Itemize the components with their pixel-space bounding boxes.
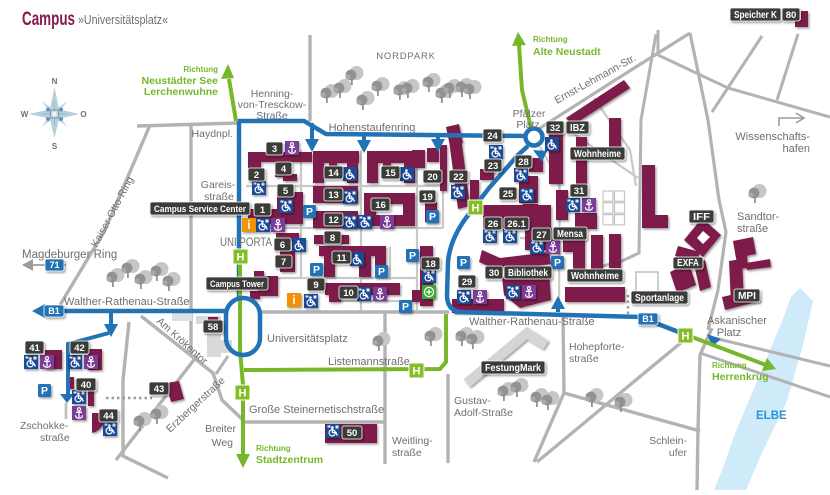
svg-text:Campus Tower: Campus Tower (210, 279, 264, 290)
svg-text:straße: straße (737, 223, 768, 235)
svg-text:IFF: IFF (693, 212, 710, 223)
svg-text:P: P (41, 385, 48, 397)
svg-text:32: 32 (550, 123, 561, 134)
svg-text:18: 18 (425, 259, 436, 270)
svg-text:H: H (237, 252, 245, 264)
svg-text:straße: straße (392, 447, 422, 459)
svg-text:H: H (239, 388, 247, 400)
svg-text:FestungMark: FestungMark (485, 363, 541, 374)
svg-text:Schlein-: Schlein- (649, 435, 687, 447)
svg-text:Zschokke-: Zschokke- (20, 420, 69, 432)
svg-text:EXFA: EXFA (677, 258, 699, 269)
svg-text:straße: straße (204, 191, 234, 203)
svg-text:5: 5 (283, 186, 289, 197)
svg-text:P: P (313, 264, 320, 276)
svg-text:80: 80 (786, 10, 797, 21)
svg-text:Magdeburger Ring: Magdeburger Ring (22, 249, 117, 261)
svg-text:P: P (460, 257, 467, 269)
svg-text:S: S (52, 142, 58, 151)
svg-text:29: 29 (462, 277, 473, 288)
svg-text:25: 25 (503, 189, 514, 200)
svg-text:19: 19 (422, 192, 433, 203)
svg-text:straße: straße (40, 432, 70, 444)
svg-text:W: W (21, 110, 29, 119)
svg-text:14: 14 (328, 168, 339, 179)
svg-text:26: 26 (488, 219, 499, 230)
svg-text:ELBE: ELBE (756, 410, 787, 422)
svg-text:26.1: 26.1 (507, 219, 526, 230)
svg-text:12: 12 (328, 215, 339, 226)
svg-text:23: 23 (488, 161, 499, 172)
svg-text:Alte Neustadt: Alte Neustadt (533, 46, 601, 58)
svg-text:Speicher K: Speicher K (734, 10, 778, 21)
svg-text:Richtung: Richtung (183, 65, 218, 74)
svg-text:71: 71 (49, 260, 59, 270)
svg-text:40: 40 (81, 380, 92, 391)
svg-text:Askanischer: Askanischer (707, 315, 767, 327)
svg-text:16: 16 (375, 200, 386, 211)
svg-text:P: P (378, 266, 385, 278)
svg-text:22: 22 (453, 172, 464, 183)
svg-text:Listemannstraße: Listemannstraße (328, 356, 410, 368)
svg-text:20: 20 (427, 172, 438, 183)
svg-text:Sandtor-: Sandtor- (737, 211, 780, 223)
svg-text:9: 9 (313, 280, 318, 291)
svg-text:straße: straße (569, 353, 599, 365)
svg-text:MPI: MPI (738, 291, 756, 302)
svg-text:Universitätsplatz: Universitätsplatz (267, 333, 348, 345)
svg-text:43: 43 (154, 384, 165, 395)
svg-text:Walther-Rathenau-Straße: Walther-Rathenau-Straße (64, 296, 190, 308)
svg-text:15: 15 (385, 168, 396, 179)
svg-text:Wohnheime: Wohnheime (571, 271, 619, 282)
svg-text:P: P (429, 211, 436, 223)
svg-text:4: 4 (281, 164, 287, 175)
svg-text:41: 41 (29, 343, 40, 354)
svg-text:P: P (306, 206, 313, 218)
svg-text:O: O (80, 110, 86, 119)
svg-text:Weg: Weg (212, 437, 234, 449)
svg-text:Bibliothek: Bibliothek (508, 268, 548, 279)
svg-text:50: 50 (347, 428, 358, 439)
svg-text:Weitling-: Weitling- (392, 435, 433, 447)
svg-text:P: P (554, 257, 561, 269)
svg-text:P: P (402, 301, 409, 313)
svg-text:H: H (472, 203, 480, 215)
svg-text:11: 11 (336, 253, 347, 264)
svg-text:IBZ: IBZ (570, 123, 585, 134)
svg-text:NORDPARK: NORDPARK (376, 51, 436, 62)
svg-text:H: H (413, 366, 421, 378)
svg-text:Herrenkrug: Herrenkrug (712, 371, 769, 383)
svg-text:N: N (52, 77, 58, 86)
svg-text:13: 13 (328, 190, 339, 201)
svg-text:42: 42 (74, 343, 85, 354)
svg-text:Lerchenwuhne: Lerchenwuhne (144, 86, 218, 98)
svg-text:Walther-Rathenau-Straße: Walther-Rathenau-Straße (469, 316, 595, 328)
svg-text:Wohnheime: Wohnheime (574, 149, 621, 160)
svg-text:Wissenschafts-: Wissenschafts- (735, 131, 810, 143)
svg-text:»Universitätsplatz«: »Universitätsplatz« (78, 12, 168, 27)
svg-text:Richtung: Richtung (712, 361, 747, 370)
svg-text:Stadtzentrum: Stadtzentrum (256, 454, 323, 466)
svg-text:Platz: Platz (516, 119, 539, 131)
svg-text:H: H (682, 331, 690, 343)
svg-text:Platz: Platz (717, 327, 741, 339)
svg-text:27: 27 (536, 230, 547, 241)
svg-text:3: 3 (272, 144, 277, 155)
svg-text:Campus: Campus (22, 9, 75, 30)
svg-text:Sportanlage: Sportanlage (635, 293, 684, 304)
svg-text:Hohenstaufenring: Hohenstaufenring (329, 122, 416, 134)
svg-text:28: 28 (518, 157, 529, 168)
svg-text:2: 2 (254, 170, 259, 181)
svg-text:Richtung: Richtung (533, 35, 568, 44)
svg-text:24: 24 (487, 131, 498, 142)
svg-text:58: 58 (208, 322, 219, 333)
svg-text:Große Steinernetischstraße: Große Steinernetischstraße (249, 404, 384, 416)
svg-text:i: i (292, 295, 295, 307)
svg-text:7: 7 (281, 257, 286, 268)
svg-text:ufer: ufer (669, 447, 688, 459)
svg-text:Richtung: Richtung (256, 444, 291, 453)
svg-text:30: 30 (489, 268, 500, 279)
svg-text:B1: B1 (642, 314, 654, 324)
svg-text:B1: B1 (48, 306, 60, 316)
svg-text:10: 10 (343, 288, 354, 299)
svg-text:1: 1 (260, 205, 266, 216)
svg-text:UNI PORTA: UNI PORTA (220, 237, 272, 249)
svg-text:8: 8 (330, 233, 335, 244)
svg-text:P: P (409, 250, 416, 262)
svg-text:Adolf-Straße: Adolf-Straße (454, 407, 513, 419)
svg-text:Gareis-: Gareis- (201, 179, 236, 191)
svg-text:hafen: hafen (782, 143, 810, 155)
svg-text:i: i (247, 220, 250, 232)
svg-text:Hohepforte-: Hohepforte- (569, 341, 625, 353)
svg-text:Gustav-: Gustav- (454, 395, 491, 407)
svg-text:44: 44 (103, 411, 114, 422)
svg-text:Breiter: Breiter (205, 423, 236, 435)
svg-text:Straße: Straße (256, 110, 288, 122)
svg-text:Mensa: Mensa (557, 229, 583, 240)
svg-text:6: 6 (280, 240, 285, 251)
svg-text:Campus Service Center: Campus Service Center (154, 204, 246, 215)
svg-text:31: 31 (574, 186, 585, 197)
svg-text:Haydnpl.: Haydnpl. (192, 128, 233, 140)
